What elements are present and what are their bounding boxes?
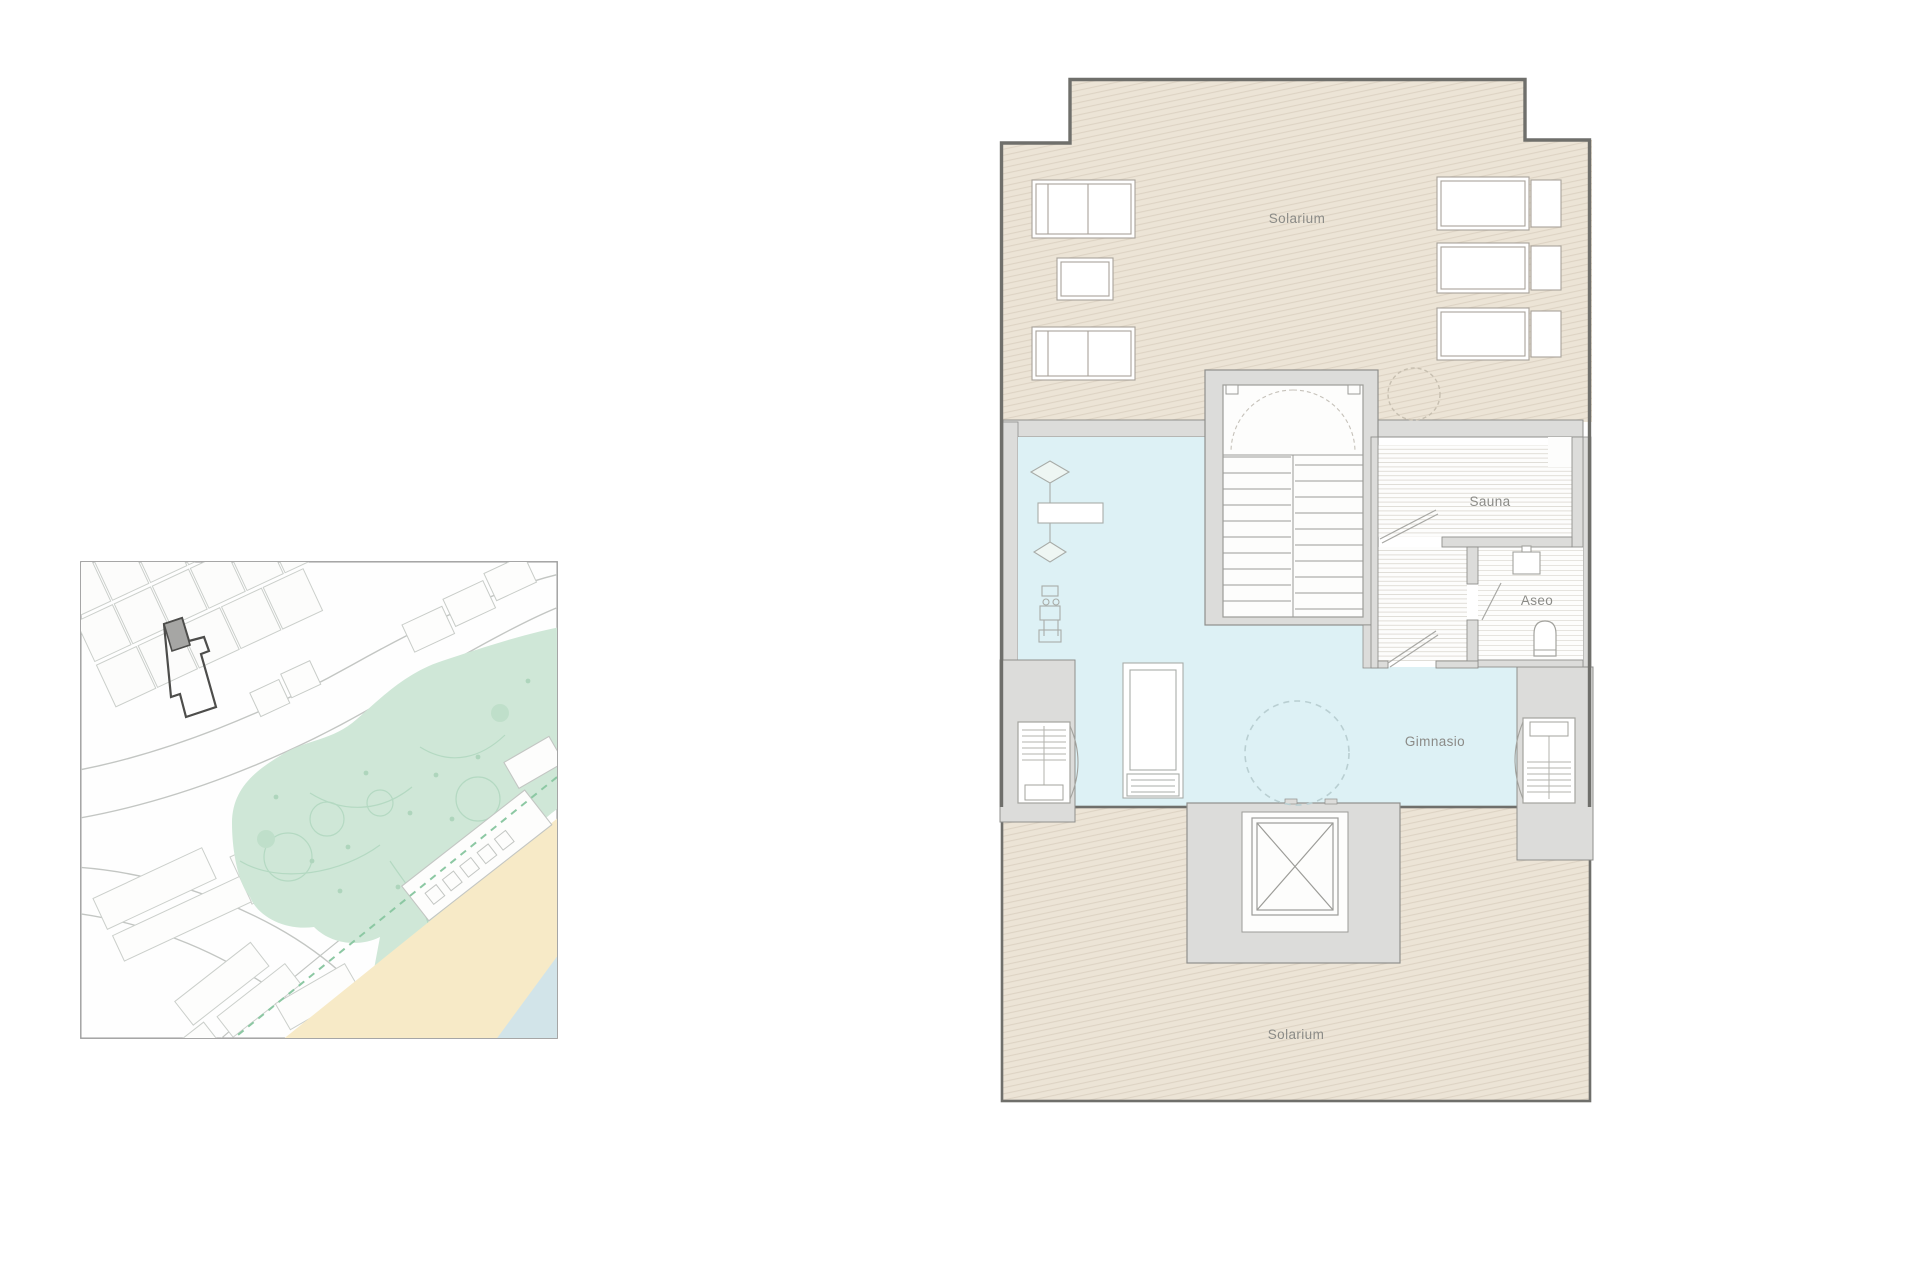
sauna-aseo-block xyxy=(1371,437,1583,668)
lounger-pillow xyxy=(1531,246,1561,290)
sun-lounger xyxy=(1437,308,1529,360)
treadmill xyxy=(1123,663,1183,798)
lounger-pillow xyxy=(1531,311,1561,357)
sun-lounger xyxy=(1437,177,1529,230)
map-park-tree-large xyxy=(257,830,275,848)
room-label-aseo: Aseo xyxy=(1521,593,1553,608)
gym-bench xyxy=(1038,503,1103,523)
room-label-solarium-bottom: Solarium xyxy=(1268,1027,1324,1042)
room-label-sauna: Sauna xyxy=(1469,494,1510,509)
page-canvas: Solarium Sauna Aseo Gimnasio Solarium xyxy=(0,0,1920,1280)
site-map-svg xyxy=(80,561,558,1039)
wall-left-gym xyxy=(1003,422,1018,662)
side-table xyxy=(1057,258,1113,300)
elevator-lobby xyxy=(1242,812,1348,932)
map-park-tree-large xyxy=(491,704,509,722)
room-label-gimnasio: Gimnasio xyxy=(1405,734,1465,749)
sun-lounger xyxy=(1437,243,1529,293)
stairwell xyxy=(1205,370,1378,668)
elevator-block xyxy=(1187,799,1400,963)
left-niche-block xyxy=(1000,660,1078,822)
room-label-solarium-top: Solarium xyxy=(1269,211,1325,226)
right-niche-block xyxy=(1515,667,1593,860)
aseo-toilet xyxy=(1534,621,1556,656)
vestibule-floor xyxy=(1378,547,1467,661)
lounger-pillow xyxy=(1531,180,1561,227)
floor-plan-svg: Solarium Sauna Aseo Gimnasio Solarium xyxy=(990,60,1605,1115)
sauna-floor xyxy=(1378,445,1572,537)
